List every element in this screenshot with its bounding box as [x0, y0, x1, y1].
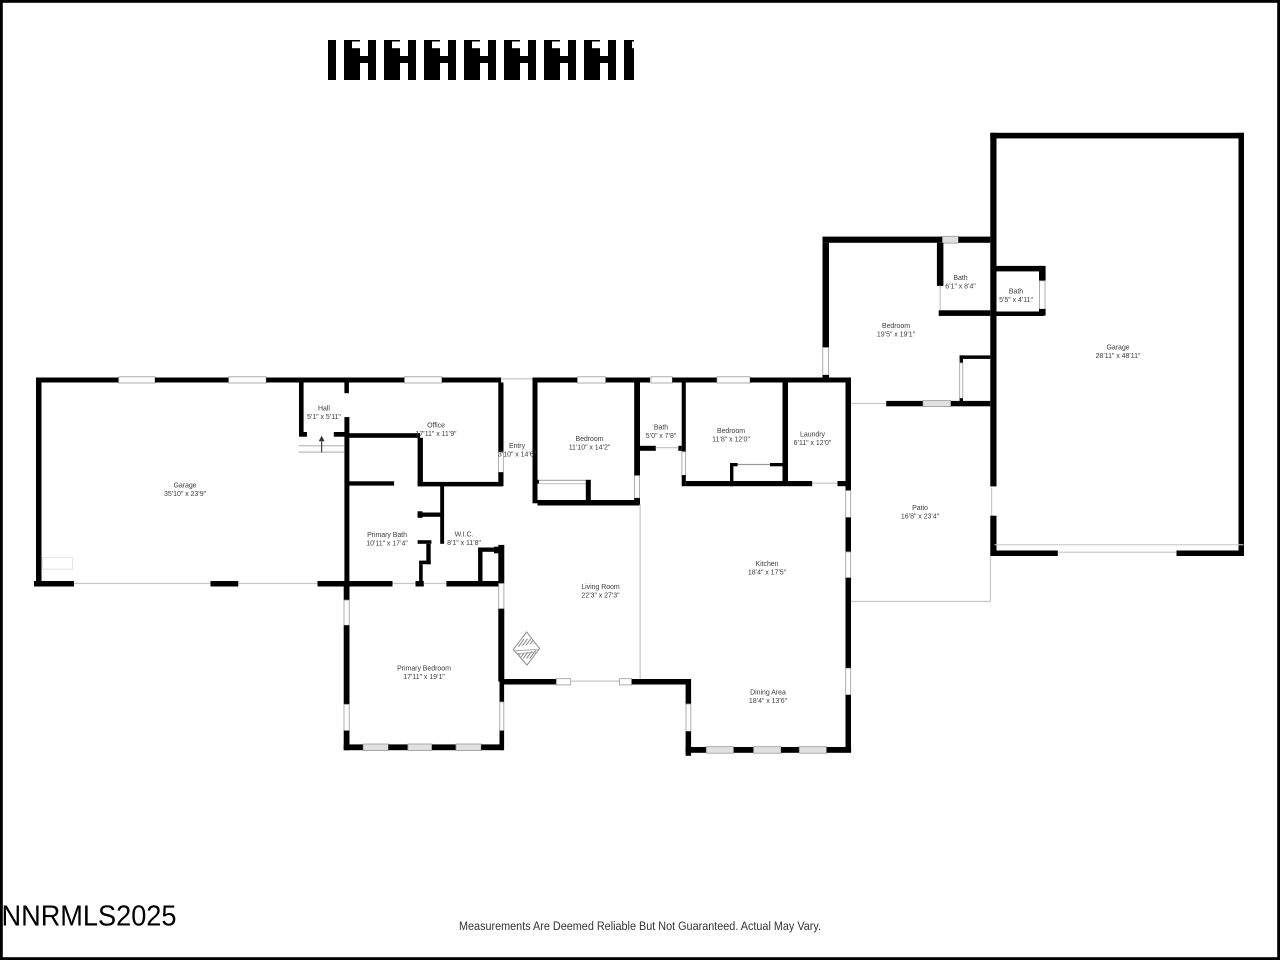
- svg-text:5’1" x 5’11": 5’1" x 5’11": [307, 414, 341, 421]
- svg-text:19’5" x 19’1": 19’5" x 19’1": [877, 332, 916, 339]
- svg-text:6’11" x 12’0": 6’11" x 12’0": [794, 440, 832, 447]
- svg-text:5’0" x 7’8": 5’0" x 7’8": [646, 433, 677, 440]
- svg-text:Hall: Hall: [318, 405, 330, 412]
- svg-text:11’10" x 14’2": 11’10" x 14’2": [569, 445, 611, 452]
- svg-text:Kitchen: Kitchen: [756, 561, 779, 568]
- svg-text:Bedroom: Bedroom: [717, 428, 745, 435]
- svg-text:28’11" x 48’11": 28’11" x 48’11": [1096, 353, 1141, 360]
- svg-text:18’4" x 13’6": 18’4" x 13’6": [749, 698, 788, 705]
- svg-text:Bath: Bath: [1009, 289, 1023, 296]
- svg-text:NNRMLS2025: NNRMLS2025: [2, 901, 177, 933]
- svg-text:Primary Bedroom: Primary Bedroom: [397, 666, 451, 673]
- svg-text:8’1" x 11’8": 8’1" x 11’8": [447, 540, 481, 547]
- svg-text:Dining Area: Dining Area: [750, 690, 786, 697]
- svg-text:Laundry: Laundry: [800, 432, 825, 439]
- svg-text:17’11" x 11’9": 17’11" x 11’9": [416, 431, 458, 438]
- svg-text:Bath: Bath: [654, 425, 668, 432]
- svg-text:Garage: Garage: [173, 483, 196, 490]
- svg-text:35’10" x 23’9": 35’10" x 23’9": [164, 491, 207, 498]
- svg-text:17’11" x 19’1": 17’11" x 19’1": [403, 674, 445, 681]
- svg-text:11’8" x 12’0": 11’8" x 12’0": [712, 437, 750, 444]
- svg-text:Bath: Bath: [953, 275, 967, 282]
- svg-text:W.I.C.: W.I.C.: [455, 532, 474, 539]
- svg-text:6’1" x 8’4": 6’1" x 8’4": [945, 284, 976, 291]
- svg-text:Bedroom: Bedroom: [575, 436, 603, 443]
- svg-text:5’5" x 4’11": 5’5" x 4’11": [999, 297, 1033, 304]
- svg-text:10’11" x 17’4": 10’11" x 17’4": [366, 541, 408, 548]
- svg-text:22’3" x 27’3": 22’3" x 27’3": [581, 593, 620, 600]
- svg-text:3’10" x 14’6": 3’10" x 14’6": [498, 452, 537, 459]
- svg-text:Measurements Are Deemed Reliab: Measurements Are Deemed Reliable But Not…: [459, 919, 821, 933]
- svg-text:Office: Office: [427, 423, 445, 430]
- svg-text:Primary Bath: Primary Bath: [367, 532, 407, 539]
- svg-text:Living Room: Living Room: [581, 584, 620, 591]
- svg-text:16’8" x 23’4": 16’8" x 23’4": [901, 514, 940, 521]
- svg-text:Bedroom: Bedroom: [882, 323, 910, 330]
- svg-text:Garage: Garage: [1106, 345, 1129, 352]
- svg-text:18’4" x 17’5": 18’4" x 17’5": [748, 570, 787, 577]
- svg-text:Patio: Patio: [912, 505, 928, 512]
- svg-text:Entry: Entry: [509, 443, 526, 450]
